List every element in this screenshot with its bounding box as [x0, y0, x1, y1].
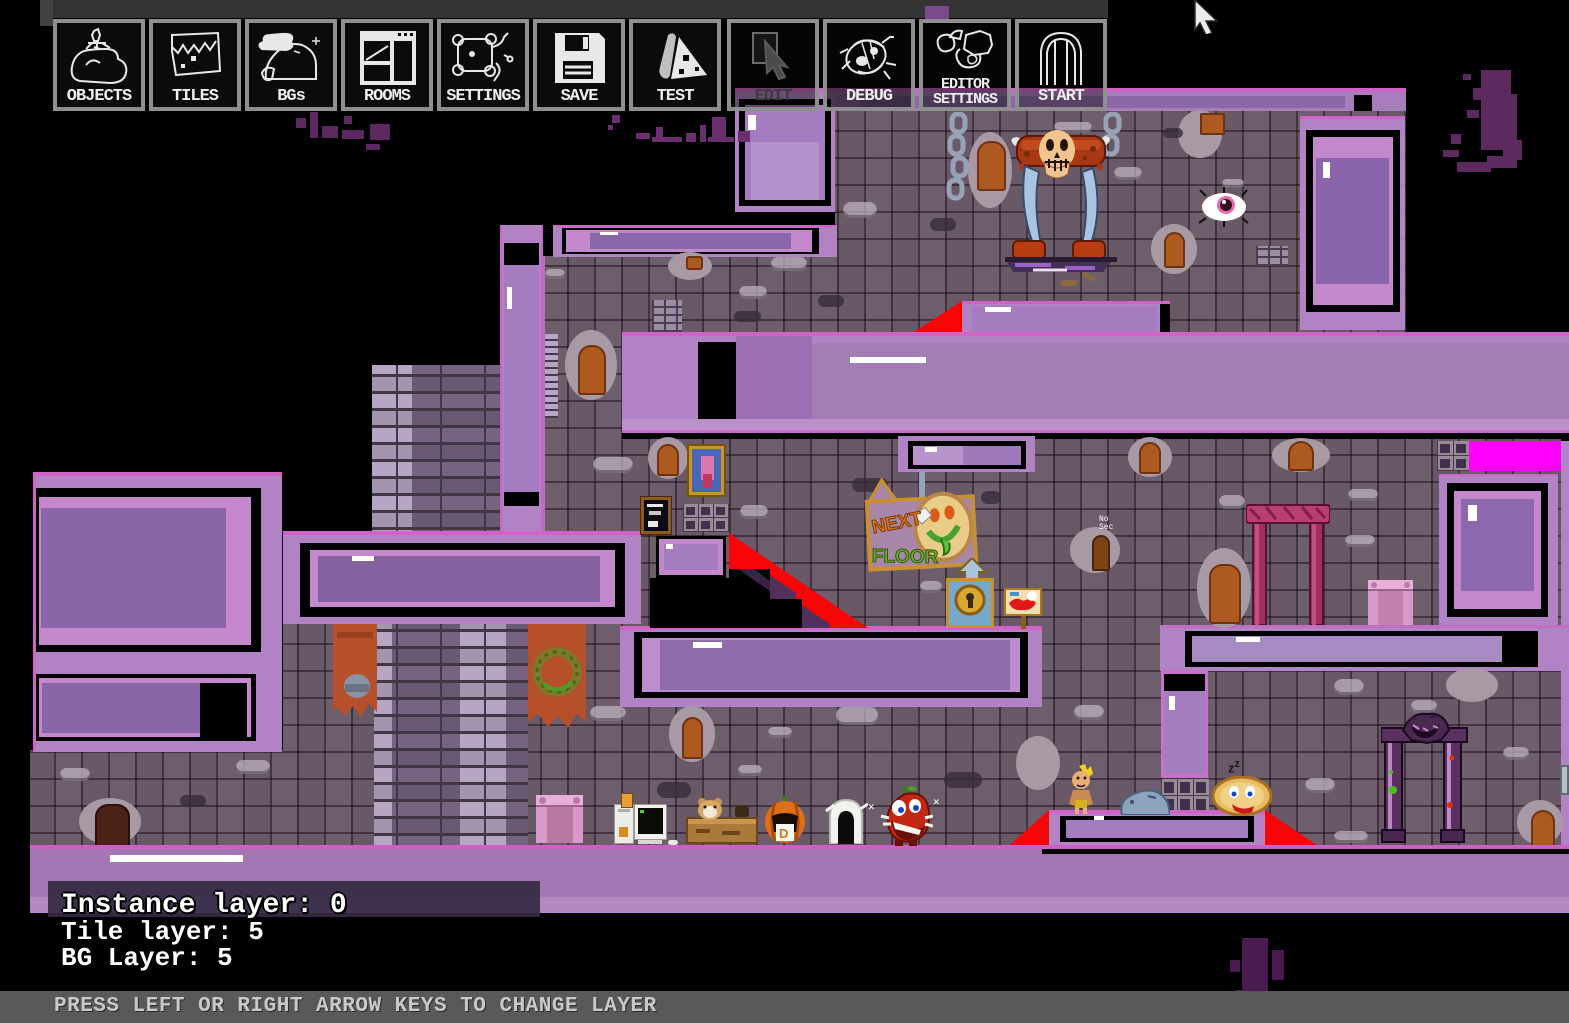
svg-text:FLΟΟR: FLΟΟR [872, 546, 939, 568]
svg-text:D: D [779, 826, 788, 841]
